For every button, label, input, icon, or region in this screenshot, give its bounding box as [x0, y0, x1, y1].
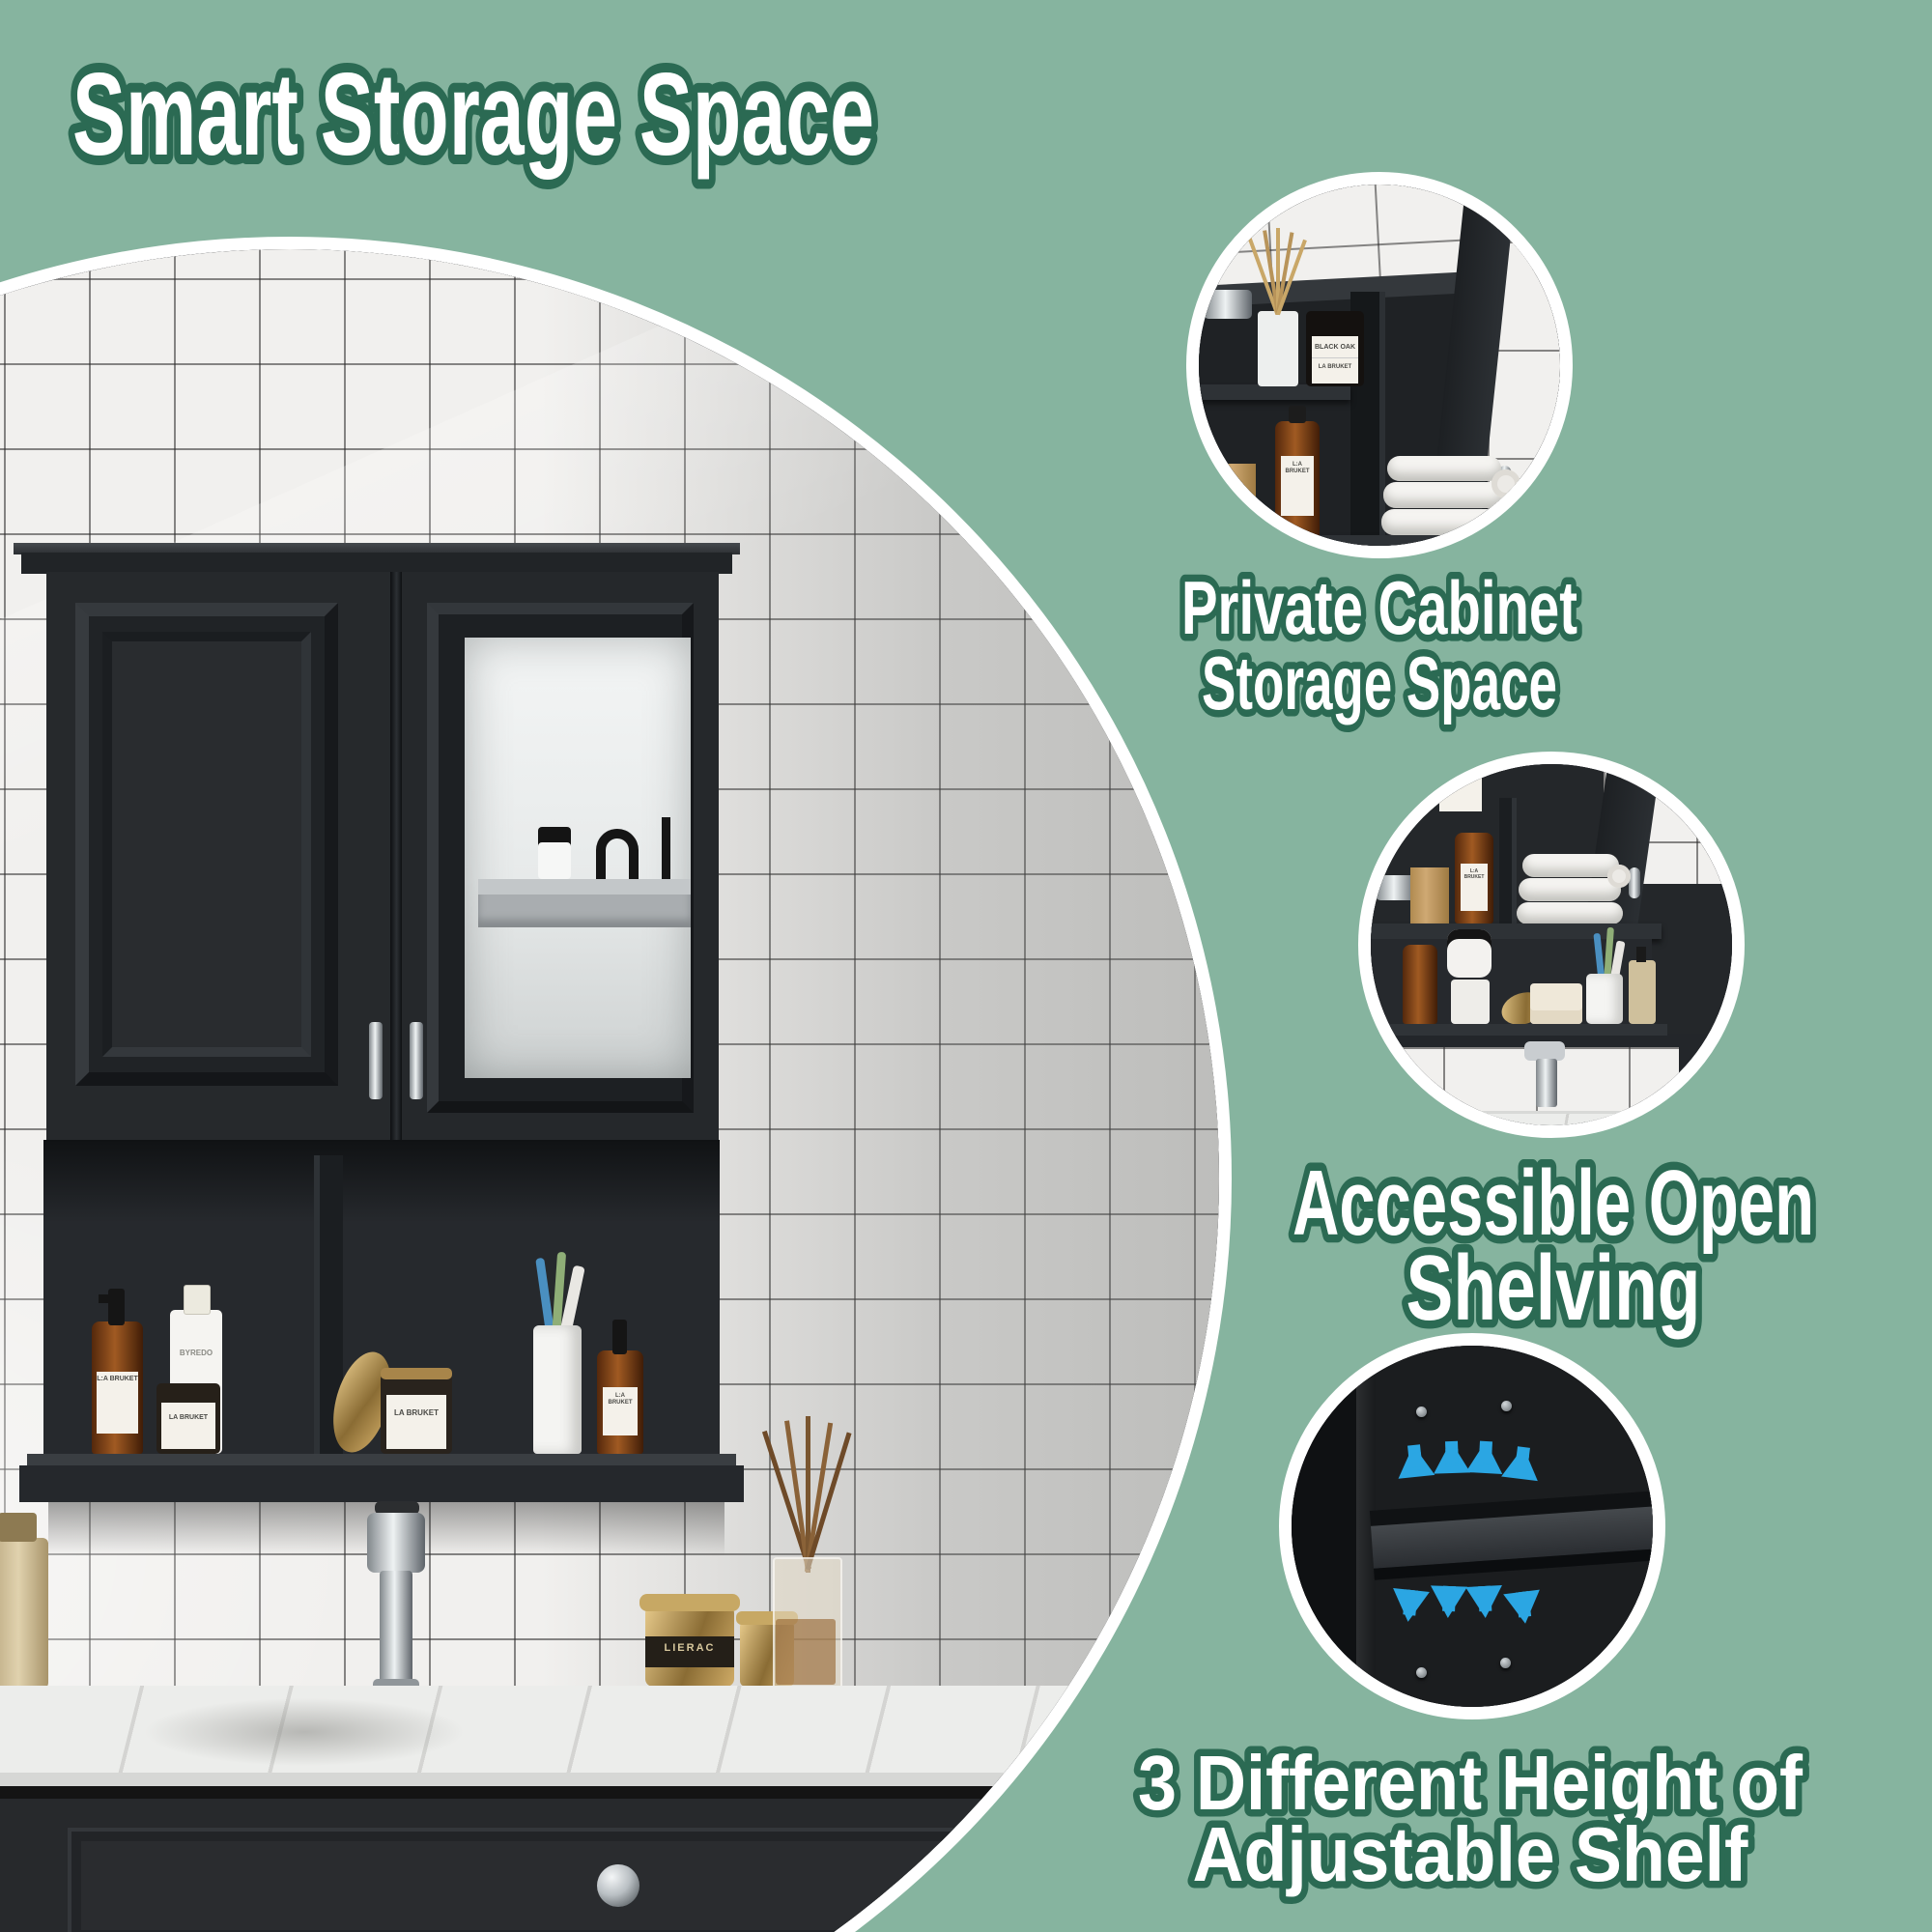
c2-faucet-head [1524, 1041, 1565, 1061]
amber-bottle-2-label: L:A BRUKET [603, 1387, 638, 1435]
cabinet-crown [21, 553, 732, 574]
feature-circle-1-clip: BLACK OAK LA BRUKET L:A BRUKET [1199, 185, 1560, 546]
left-door-panel [102, 632, 311, 1057]
reflected-shelf [478, 879, 691, 895]
c3-pin-hole-2 [1501, 1401, 1512, 1411]
c2-amber-lower [1403, 945, 1437, 1024]
caption-open-shelving: Accessible Open Shelving [1264, 1150, 1843, 1343]
c2-beige-bottle [1629, 960, 1656, 1024]
amber-pump-top-2 [612, 1320, 627, 1354]
c2-bottom-lip [1371, 1036, 1671, 1047]
amber-pump-spout [99, 1294, 124, 1303]
c2-candle-card: BLACK OAK [1439, 765, 1482, 811]
c3-pin-hole-3 [1416, 1667, 1427, 1678]
c2-towel-roll [1607, 865, 1631, 888]
c2-towel-1 [1522, 854, 1619, 877]
c2-cream-jar [1530, 983, 1582, 1024]
reflected-shelf-rail [478, 895, 691, 927]
c1-shelf-upper [1199, 384, 1350, 400]
caption-2-line-2: Shelving [1406, 1236, 1701, 1340]
caption-1-line-1: Private Cabinet [1181, 565, 1577, 650]
caption-1-line-2: Storage Space [1202, 640, 1557, 725]
shelf-board-front [19, 1465, 744, 1502]
reflected-wand [662, 817, 670, 879]
reflected-jar [538, 827, 571, 879]
diffuser-liquid [776, 1619, 836, 1685]
caption-private-cabinet: Private Cabinet Storage Space [1090, 551, 1669, 734]
cabinet-left-door [46, 572, 390, 1140]
c2-perfume-round [1447, 929, 1492, 978]
c2-amber-upper-label: L:A BRUKET [1461, 864, 1488, 911]
c1-candle-label-bottom: LA BRUKET [1312, 357, 1358, 384]
c1-towel-3 [1381, 509, 1505, 535]
c1-diffuser-bottle [1258, 311, 1298, 386]
c3-pin-hole-1 [1416, 1406, 1427, 1417]
c1-hinge [1204, 290, 1252, 319]
tall-beige-bottle [0, 1538, 48, 1689]
gold-jar-band: LIERAC [645, 1636, 734, 1667]
cabinet-mirror-door [402, 572, 719, 1140]
feature-circle-2-clip: BLACK OAK L:A BRUKET [1371, 764, 1732, 1125]
c2-towel-3 [1517, 902, 1623, 924]
sink-recess-shadow [145, 1698, 464, 1766]
drawer-knob [597, 1864, 639, 1907]
counter-front-edge [0, 1773, 1219, 1786]
c1-towel-roll-2 [1495, 500, 1520, 526]
c1-amber-cap [1289, 406, 1306, 423]
feature-circle-adjustable-shelf [1279, 1333, 1665, 1719]
feature-circle-open-shelving: BLACK OAK L:A BRUKET [1358, 752, 1745, 1138]
infographic-canvas: Smart Storage Space [0, 0, 1932, 1932]
left-door-handle [369, 1022, 383, 1099]
c1-towel-1 [1387, 456, 1501, 481]
byredo-cap [184, 1285, 211, 1315]
c2-mid-shelf [1371, 923, 1662, 939]
c3-side-dark [1292, 1346, 1359, 1707]
caption-3-line-2: Adjustable Shelf [1193, 1811, 1748, 1897]
c1-towel-2 [1383, 482, 1503, 508]
c2-toothbrush-cup [1586, 974, 1623, 1024]
c2-beige-pump [1636, 947, 1646, 962]
feature-circle-private-cabinet: BLACK OAK LA BRUKET L:A BRUKET [1186, 172, 1573, 558]
mirror-glass [465, 638, 691, 1078]
c2-towel-2 [1519, 878, 1621, 901]
dark-jar-label: LA BRUKET [161, 1403, 215, 1449]
c1-towel-roll-1 [1492, 469, 1520, 498]
c2-wood-block [1410, 867, 1449, 923]
vanity-drawer [68, 1828, 976, 1932]
c1-wood-block [1215, 464, 1256, 537]
c1-amber-label: L:A BRUKET [1281, 456, 1314, 516]
main-photo-circle: L:A BRUKET BYREDO LA BRUKET LA BRUKET L:… [0, 237, 1232, 1932]
toothbrush-cup [533, 1325, 582, 1454]
labelled-jar-rim [381, 1368, 452, 1379]
main-photo-clip: L:A BRUKET BYREDO LA BRUKET LA BRUKET L:… [0, 249, 1219, 1932]
tall-beige-cap [0, 1513, 37, 1542]
right-door-handle [410, 1022, 423, 1099]
up-arrow-icon-2 [1433, 1440, 1469, 1441]
faucet-body [380, 1571, 412, 1683]
c2-white-jar [1451, 980, 1490, 1024]
labelled-jar-label: LA BRUKET [386, 1395, 446, 1449]
c2-divider [1499, 798, 1517, 923]
gold-jar-lid [639, 1594, 740, 1611]
caption-adjustable-shelf: 3 Different Height of Adjustable Shelf [1180, 1734, 1760, 1932]
door-seam [390, 572, 402, 1140]
amber-bottle-label: L:A BRUKET [97, 1372, 138, 1434]
title-text: Smart Storage Space [72, 48, 874, 180]
reflected-hook [596, 829, 639, 879]
c2-faucet-body [1536, 1059, 1557, 1107]
c3-pin-hole-4 [1500, 1658, 1511, 1668]
c2-door-handle [1629, 867, 1640, 898]
faucet-head [367, 1513, 425, 1573]
c2-marble [1371, 1111, 1679, 1125]
down-arrow-icon-2 [1431, 1585, 1467, 1586]
feature-circle-3-clip [1292, 1346, 1653, 1707]
page-title: Smart Storage Space [58, 39, 947, 184]
counter-gap-shadow [0, 1786, 1219, 1800]
